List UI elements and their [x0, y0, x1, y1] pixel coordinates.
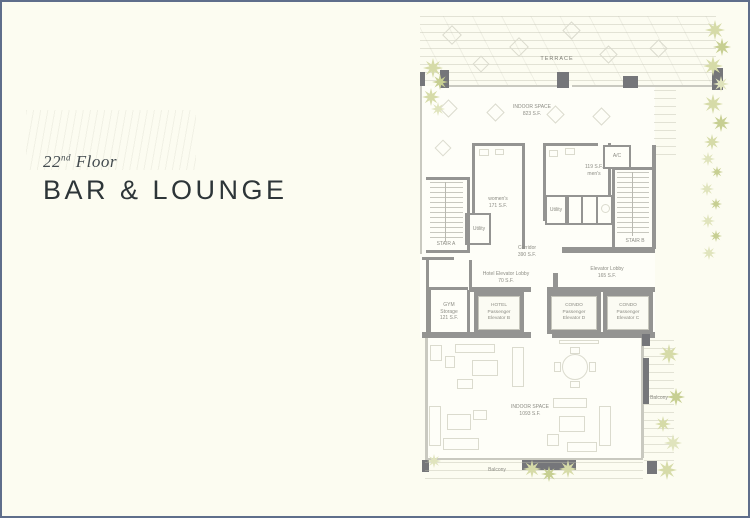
wall: [422, 332, 531, 338]
wall: [469, 260, 472, 288]
wall: [552, 332, 655, 338]
room-area: 70 S.F.: [498, 278, 514, 284]
floor-number: 22: [43, 152, 61, 171]
fixture-icon: [565, 148, 575, 155]
chair-icon: [554, 362, 561, 372]
elevator-unit: Elevator D: [563, 316, 585, 323]
elevator-hotel-b-label: HOTEL Passenger Elevator B: [478, 296, 520, 330]
fixture-icon: [495, 149, 504, 155]
room-name: INDOOR SPACE: [511, 404, 549, 410]
fixture-icon: [479, 149, 489, 156]
stair-a-label: STAIR A: [427, 241, 465, 248]
elevator-lobby-label: Elevator Lobby 165 S.F.: [585, 266, 629, 279]
elevator-condo-c-label: CONDO Passenger Elevator C: [607, 296, 649, 330]
coffee-table-icon: [472, 360, 498, 376]
elevator-brand: HOTEL: [491, 303, 507, 310]
plant-icon: [664, 434, 682, 452]
plant-icon: [703, 94, 723, 114]
plant-icon: [659, 344, 679, 364]
floor-word: Floor: [76, 152, 117, 171]
wall: [562, 247, 655, 253]
balcony-bottom-label: Balcony: [477, 467, 517, 474]
plant-icon: [667, 388, 685, 406]
plant-icon: [700, 182, 714, 196]
wall: [638, 85, 712, 87]
elevator-brand: CONDO: [619, 303, 637, 310]
sofa-icon: [443, 438, 479, 450]
stairs-a-icon: [430, 182, 463, 242]
column: [623, 76, 638, 88]
wall: [522, 143, 525, 249]
wall: [425, 338, 428, 460]
room-area: 119 S.F.: [585, 164, 603, 170]
plant-icon: [559, 460, 577, 478]
plant-icon: [710, 230, 722, 242]
wall: [472, 143, 475, 223]
room-name: Elevator Lobby: [590, 266, 623, 272]
elevator-hotel-b: HOTEL Passenger Elevator B: [474, 292, 524, 334]
wall: [426, 177, 470, 180]
stair-divider: [445, 182, 446, 242]
elevator-unit: Elevator B: [488, 316, 510, 323]
room-name: Corridor: [518, 245, 536, 251]
room-area: 165 S.F.: [598, 273, 616, 279]
chair-icon: [473, 410, 487, 420]
room-name: Hotel Elevator Lobby: [483, 271, 529, 277]
room-name: women's: [488, 196, 508, 202]
fixture-icon: [549, 150, 558, 157]
hotel-elevator-lobby-label: Hotel Elevator Lobby 70 S.F.: [480, 271, 532, 284]
coffee-table-icon: [447, 414, 471, 430]
utility-center-label: Utility: [546, 207, 566, 214]
column: [642, 334, 650, 346]
chair-icon: [457, 379, 473, 389]
stairs-b-icon: [617, 172, 649, 236]
sofa-icon: [429, 406, 441, 446]
floor-plan: TERRACE INDOOR SPACE 823 S.F.: [417, 14, 747, 492]
elevator-condo-d: CONDO Passenger Elevator D: [547, 292, 601, 334]
wall: [652, 145, 656, 249]
wall: [596, 195, 598, 225]
room-area: 171 S.F.: [489, 203, 507, 209]
wall: [467, 177, 470, 253]
plant-icon: [712, 114, 730, 132]
plant-icon: [703, 56, 723, 76]
chair-icon: [589, 362, 596, 372]
wall: [612, 167, 615, 249]
brochure-page: 22nd Floor BAR & LOUNGE TERRACE INDOOR S: [0, 0, 750, 518]
chair-icon: [547, 434, 559, 446]
sofa-icon: [512, 347, 524, 387]
elevator-unit: Elevator C: [617, 316, 639, 323]
wall: [449, 85, 557, 87]
column: [557, 72, 569, 88]
round-table-icon: [562, 354, 588, 380]
plant-icon: [701, 152, 715, 166]
terrace-side-strip: [654, 90, 676, 160]
stair-b-label: STAIR B: [619, 238, 651, 245]
wall: [472, 143, 525, 146]
room-name: men's: [587, 171, 600, 177]
armchair-icon: [430, 345, 442, 361]
column: [440, 70, 449, 88]
room-name: GYM: [443, 302, 454, 308]
fixture-icon: [601, 204, 610, 213]
chair-icon: [570, 347, 580, 354]
elevator-condo-d-label: CONDO Passenger Elevator D: [551, 296, 597, 330]
sofa-icon: [455, 344, 495, 353]
sofa-icon: [553, 398, 587, 408]
chair-icon: [570, 381, 580, 388]
wall: [612, 167, 654, 170]
womens-label: women's 171 S.F.: [477, 196, 519, 209]
sofa-icon: [599, 406, 611, 446]
wall: [467, 290, 470, 335]
room-area: 823 S.F.: [523, 111, 541, 117]
wall: [426, 250, 470, 253]
column: [420, 72, 425, 86]
plant-icon: [657, 460, 677, 480]
plant-icon: [711, 166, 723, 178]
plant-icon: [705, 20, 725, 40]
elevator-condo-c: CONDO Passenger Elevator C: [603, 292, 653, 334]
utility-left-label: Utility: [467, 226, 491, 233]
wall: [422, 257, 454, 260]
wall: [420, 86, 422, 254]
elevator-brand: CONDO: [565, 303, 583, 310]
wall: [543, 143, 598, 146]
gym-storage-label: GYM Storage 121 S.F.: [431, 302, 467, 322]
chair-icon: [445, 356, 455, 368]
plant-icon: [701, 214, 715, 228]
plant-icon: [710, 198, 722, 210]
page-title: BAR & LOUNGE: [43, 175, 288, 206]
room-name: Storage: [440, 309, 458, 315]
room-area: 390 S.F.: [518, 252, 536, 258]
stair-divider: [632, 172, 633, 236]
plant-icon: [523, 460, 541, 478]
room-area: 121 S.F.: [440, 315, 458, 321]
balcony-right-label: Balcony: [645, 395, 673, 402]
console-icon: [559, 340, 599, 344]
floor-ordinal: nd: [61, 152, 71, 162]
plant-icon: [702, 246, 716, 260]
plant-icon: [427, 454, 441, 468]
wall: [572, 85, 623, 87]
floor-label: 22nd Floor: [43, 152, 288, 172]
terrace-label: TERRACE: [517, 56, 597, 62]
wall: [581, 195, 583, 225]
chair-icon: [567, 442, 597, 452]
corridor-label: Corridor 390 S.F.: [507, 245, 547, 258]
wall: [428, 287, 468, 290]
room-area: 1093 S.F.: [519, 411, 540, 417]
ac-label: A/C: [605, 153, 629, 160]
plant-icon: [704, 134, 720, 150]
room-name: INDOOR SPACE: [513, 104, 551, 110]
coffee-table-icon: [559, 416, 585, 432]
title-block: 22nd Floor BAR & LOUNGE: [43, 152, 288, 206]
